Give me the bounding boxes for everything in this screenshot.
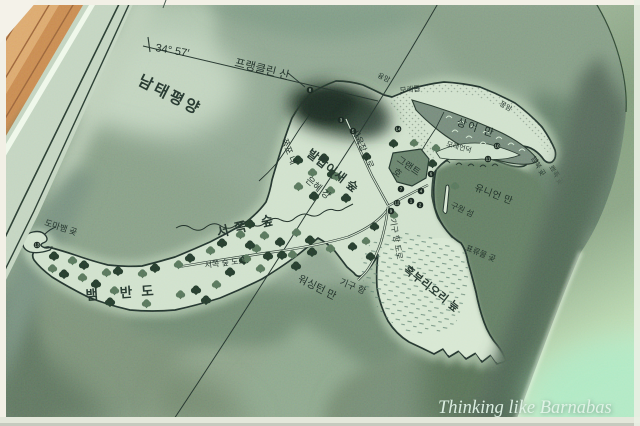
svg-text:Thinking like Barnabas: Thinking like Barnabas xyxy=(438,398,612,418)
